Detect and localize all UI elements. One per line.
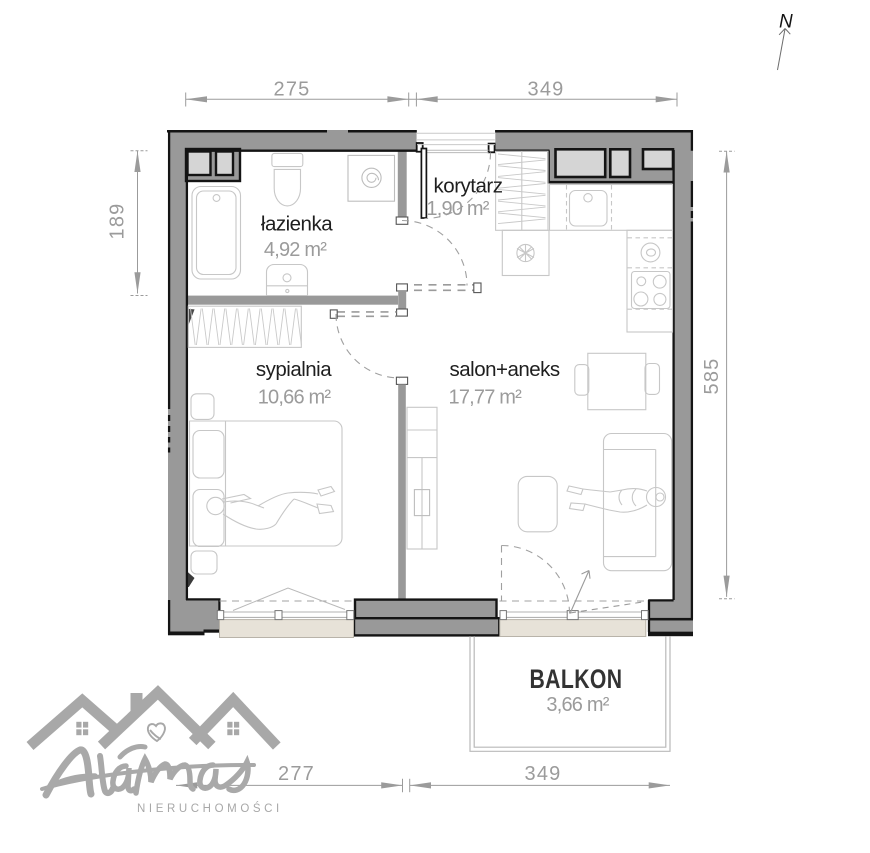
- svg-text:łazienka: łazienka: [261, 213, 333, 236]
- svg-text:4,92 m²: 4,92 m²: [264, 239, 327, 261]
- svg-text:189: 189: [107, 203, 129, 240]
- svg-text:585: 585: [701, 358, 723, 395]
- svg-text:BALKON: BALKON: [529, 665, 622, 695]
- svg-text:korytarz: korytarz: [434, 174, 503, 197]
- svg-text:salon+aneks: salon+aneks: [450, 358, 560, 381]
- svg-text:sypialnia: sypialnia: [256, 358, 332, 381]
- svg-text:349: 349: [525, 763, 562, 785]
- svg-text:1,90 m²: 1,90 m²: [426, 198, 489, 220]
- svg-text:3,66 m²: 3,66 m²: [546, 694, 609, 716]
- svg-text:275: 275: [274, 79, 311, 101]
- svg-text:17,77 m²: 17,77 m²: [449, 386, 523, 408]
- svg-text:349: 349: [528, 79, 565, 101]
- svg-text:NIERUCHOMOŚCI: NIERUCHOMOŚCI: [137, 802, 283, 815]
- svg-text:10,66 m²: 10,66 m²: [258, 386, 332, 408]
- svg-text:277: 277: [278, 763, 315, 785]
